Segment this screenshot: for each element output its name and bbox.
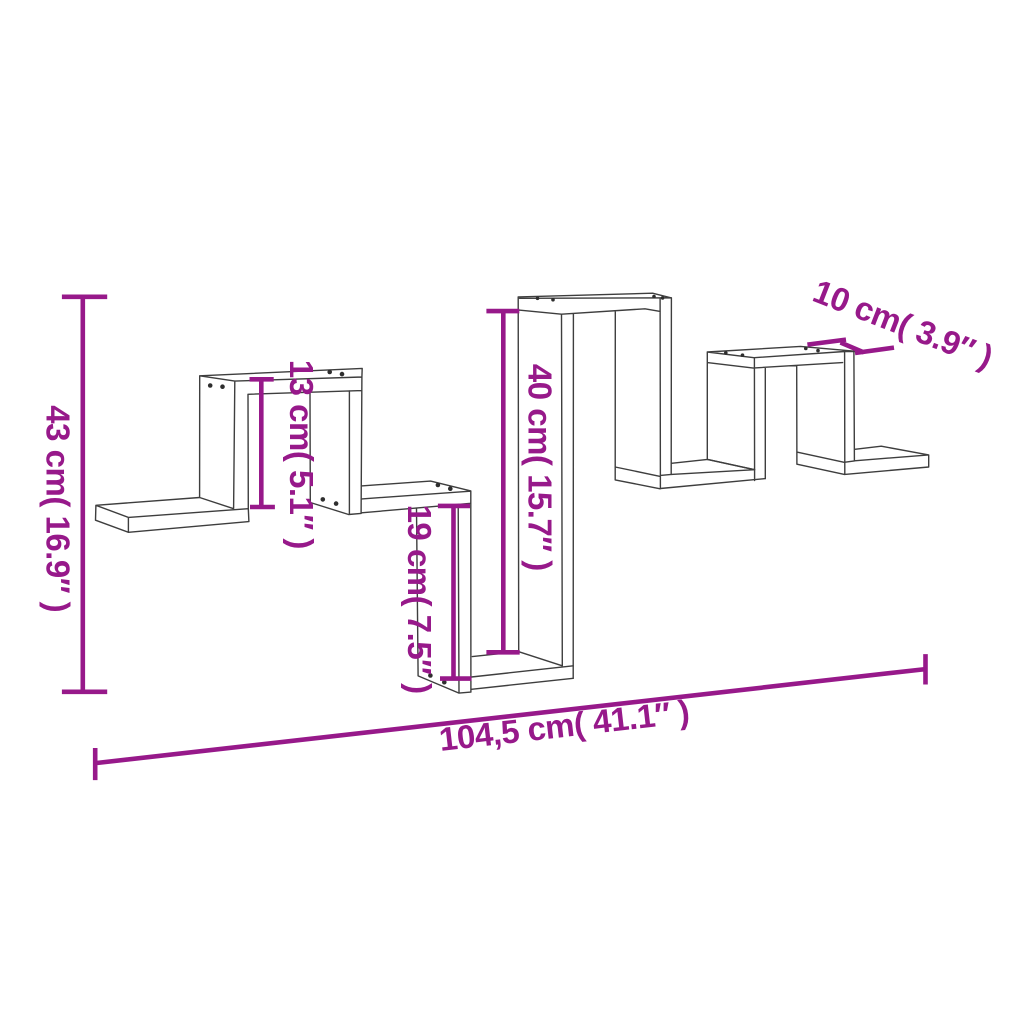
svg-text:43 cm( 16.9″ ): 43 cm( 16.9″ ): [40, 405, 77, 612]
svg-text:13 cm( 5.1″ ): 13 cm( 5.1″ ): [283, 360, 320, 549]
svg-text:104,5 cm( 41.1″ ): 104,5 cm( 41.1″ ): [437, 693, 691, 758]
svg-text:10 cm( 3.9″ ): 10 cm( 3.9″ ): [808, 272, 998, 375]
svg-text:40 cm( 15.7″ ): 40 cm( 15.7″ ): [522, 364, 559, 571]
svg-text:19 cm( 7.5″ ): 19 cm( 7.5″ ): [401, 505, 438, 694]
